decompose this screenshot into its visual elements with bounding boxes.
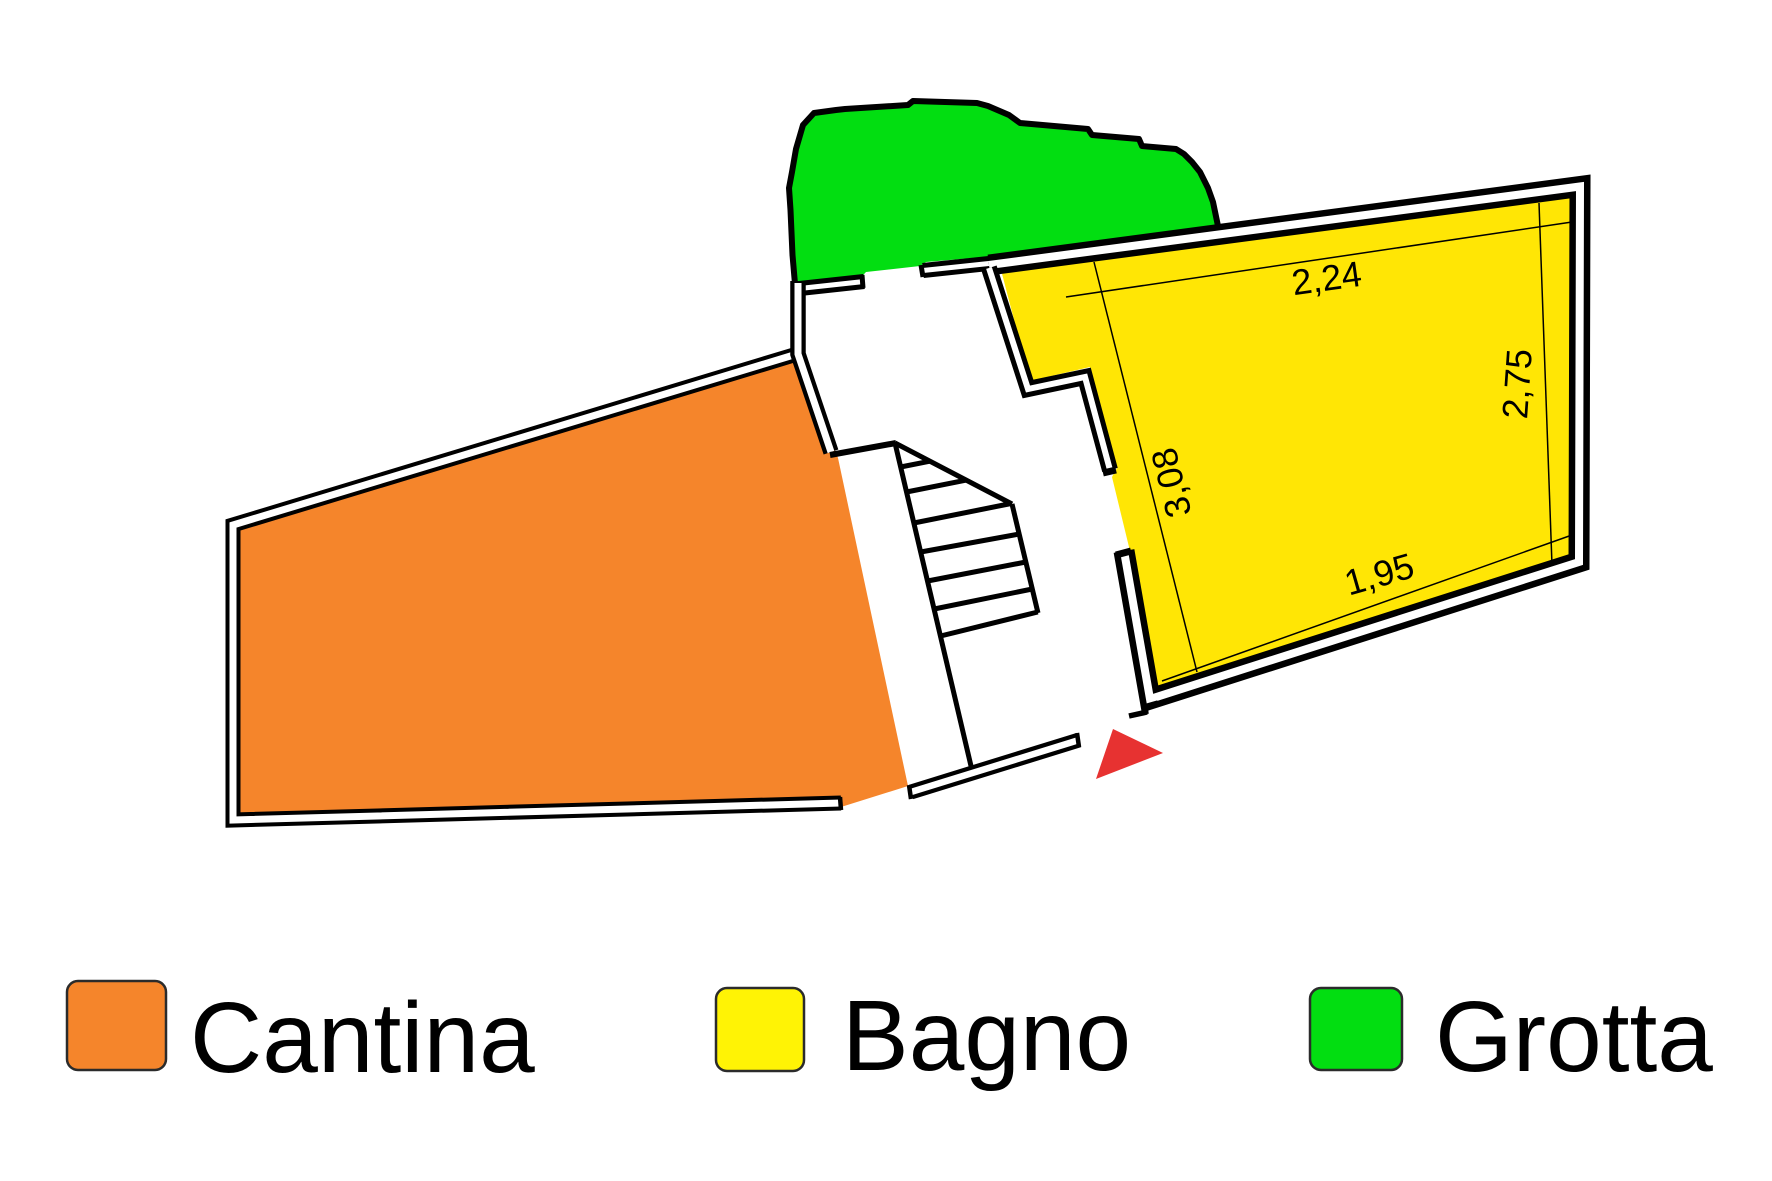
svg-text:Grotta: Grotta [1435,981,1713,1093]
svg-text:2,75: 2,75 [1494,347,1540,420]
svg-text:Cantina: Cantina [190,982,535,1094]
svg-text:Bagno: Bagno [842,980,1131,1092]
